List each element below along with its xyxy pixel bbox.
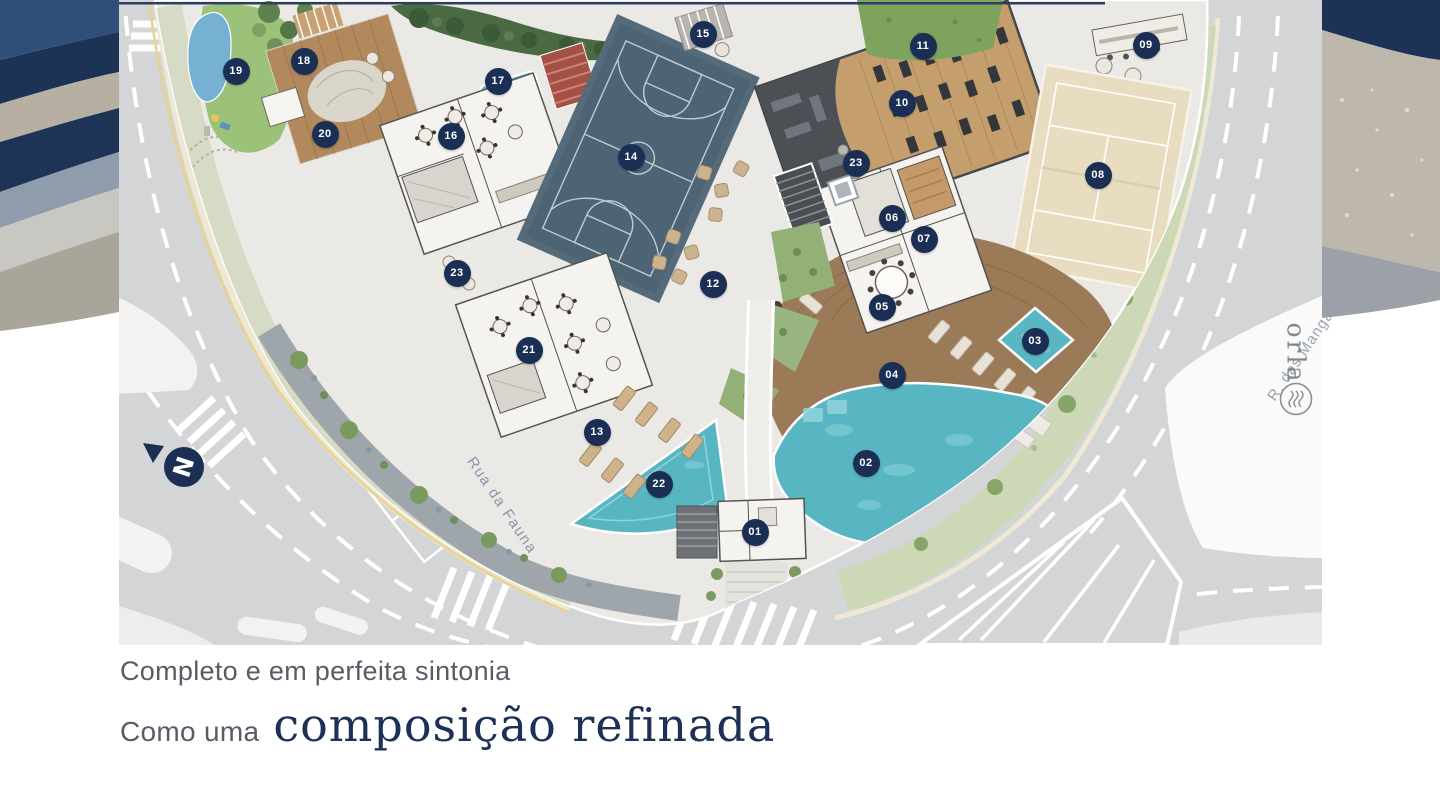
plan-marker-14[interactable]: 14 — [618, 144, 645, 171]
site-plan-image: 0102030405060708091011121314151617181920… — [119, 0, 1322, 645]
plan-marker-13[interactable]: 13 — [584, 419, 611, 446]
plan-marker-09[interactable]: 09 — [1133, 32, 1160, 59]
site-plan-slide: 0102030405060708091011121314151617181920… — [0, 0, 1440, 810]
waves-icon — [1279, 382, 1313, 416]
brand-logo-text: orla — [1282, 323, 1311, 383]
caption-subtitle: Completo e em perfeita sintonia — [120, 654, 775, 688]
texture-right-art — [1322, 0, 1440, 318]
plan-marker-01[interactable]: 01 — [742, 519, 769, 546]
plan-marker-03[interactable]: 03 — [1022, 328, 1049, 355]
north-compass: N — [140, 440, 210, 492]
plan-marker-20[interactable]: 20 — [312, 121, 339, 148]
plan-marker-22[interactable]: 22 — [646, 471, 673, 498]
brand-logo: orla — [1262, 320, 1332, 422]
plan-marker-05[interactable]: 05 — [869, 294, 896, 321]
plan-marker-19[interactable]: 19 — [223, 58, 250, 85]
plan-marker-21[interactable]: 21 — [516, 337, 543, 364]
plan-marker-18[interactable]: 18 — [291, 48, 318, 75]
plan-marker-12[interactable]: 12 — [700, 271, 727, 298]
plan-marker-04[interactable]: 04 — [879, 362, 906, 389]
plan-marker-23[interactable]: 23 — [444, 260, 471, 287]
caption-title-prefix: Como uma — [120, 716, 259, 748]
texture-left-art — [0, 0, 119, 331]
caption: Completo e em perfeita sintonia Como uma… — [120, 654, 775, 751]
plan-marker-06[interactable]: 06 — [879, 205, 906, 232]
plan-marker-16[interactable]: 16 — [438, 123, 465, 150]
plan-marker-15[interactable]: 15 — [690, 21, 717, 48]
decorative-texture-right — [1322, 0, 1440, 318]
plan-marker-10[interactable]: 10 — [889, 90, 916, 117]
compass-needle-icon — [143, 443, 164, 463]
plan-marker-17[interactable]: 17 — [485, 68, 512, 95]
caption-title-emphasis: composição refinada — [273, 700, 775, 751]
decorative-texture-left — [0, 0, 119, 331]
plan-marker-23[interactable]: 23 — [843, 150, 870, 177]
plan-marker-08[interactable]: 08 — [1085, 162, 1112, 189]
plan-marker-07[interactable]: 07 — [911, 226, 938, 253]
marker-layer: 0102030405060708091011121314151617181920… — [119, 0, 1322, 645]
plan-marker-11[interactable]: 11 — [910, 33, 937, 60]
plan-marker-02[interactable]: 02 — [853, 450, 880, 477]
